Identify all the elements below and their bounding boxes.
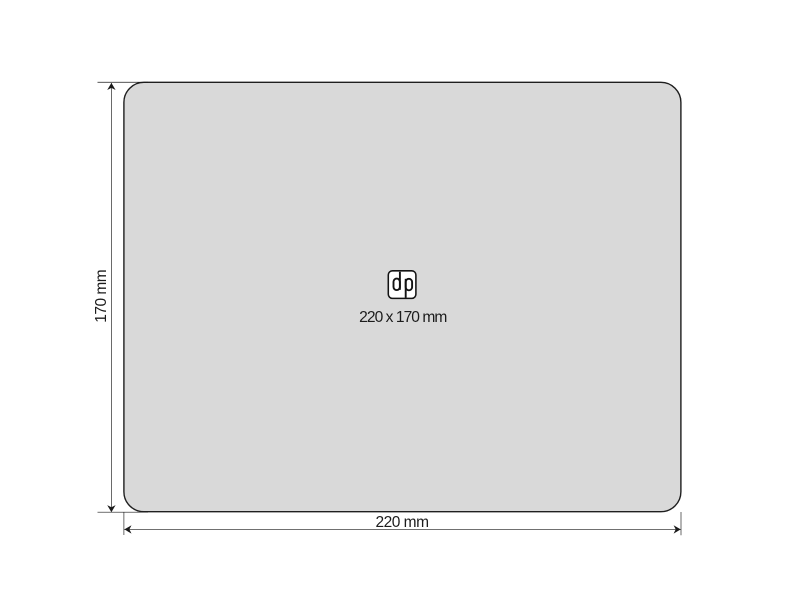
svg-text:220 mm: 220 mm [376, 514, 429, 531]
svg-text:170 mm: 170 mm [93, 270, 110, 323]
svg-text:220 x 170 mm: 220 x 170 mm [359, 309, 446, 326]
